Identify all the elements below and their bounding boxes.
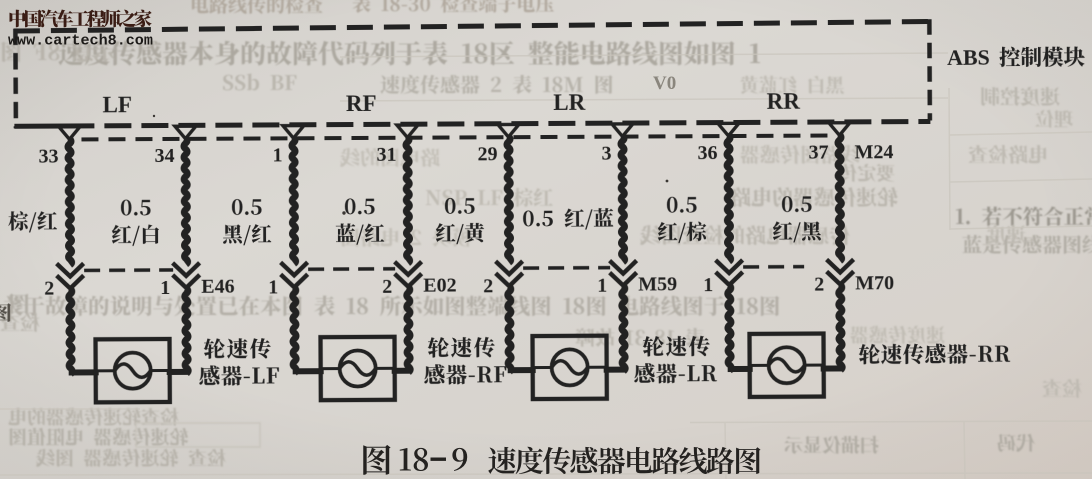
svg-text:36: 36 [697,142,717,164]
svg-text:ABS: ABS [947,45,990,70]
svg-text:E02: E02 [423,274,456,296]
svg-text:LF: LF [103,92,133,117]
svg-text:V0: V0 [653,73,676,94]
svg-text:1: 1 [703,274,713,296]
svg-text:31: 31 [376,144,396,166]
svg-text:M24: M24 [854,141,893,163]
svg-text:www.cartech8.com: www.cartech8.com [8,32,153,50]
svg-text:RF: RF [346,91,377,116]
svg-text:33: 33 [38,146,58,168]
svg-text:2: 2 [44,278,54,300]
svg-text:M70: M70 [855,272,894,294]
svg-text:RR: RR [767,89,801,114]
svg-text:3: 3 [601,143,611,165]
svg-text:1: 1 [272,144,282,166]
svg-text:1: 1 [597,275,607,297]
svg-text:37: 37 [808,142,828,164]
svg-text:1: 1 [268,276,278,298]
svg-text:E46: E46 [201,276,234,298]
svg-text:LR: LR [553,90,585,115]
svg-text:2: 2 [483,275,493,297]
svg-text:29: 29 [477,143,497,165]
svg-text:M59: M59 [638,273,677,295]
svg-text:2: 2 [382,276,392,298]
svg-text:34: 34 [154,145,174,167]
svg-text:2: 2 [814,274,824,296]
svg-text:1: 1 [160,277,170,299]
